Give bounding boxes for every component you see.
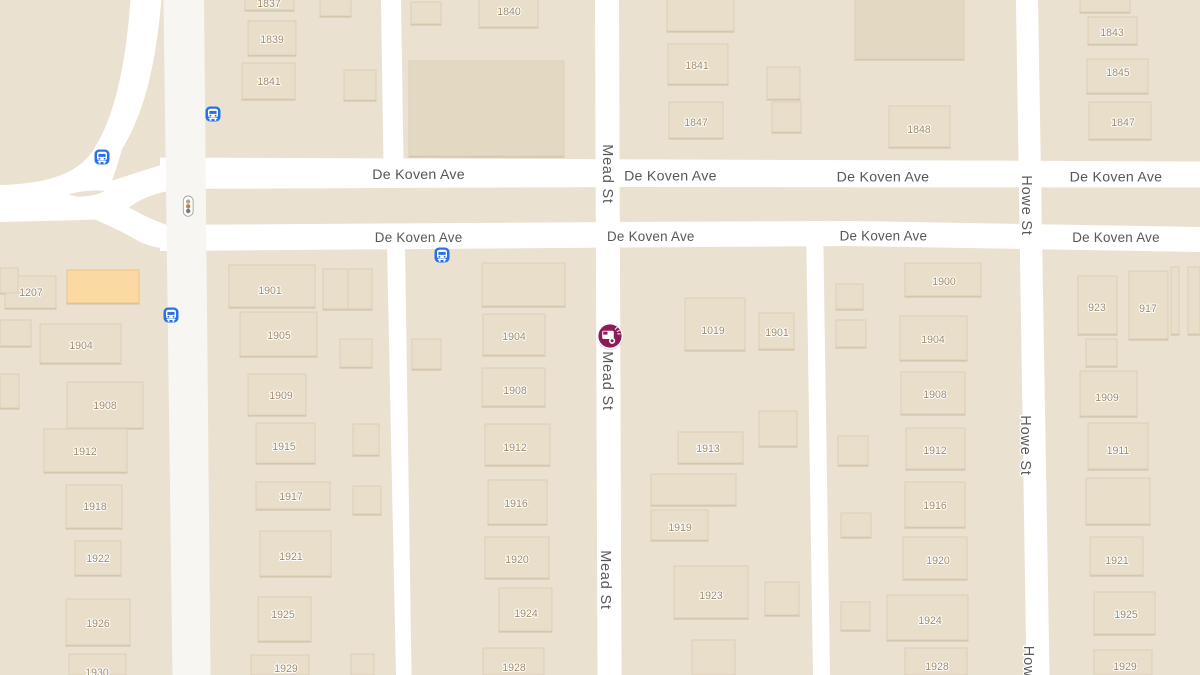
- svg-text:Howe St: Howe St: [1018, 175, 1034, 235]
- svg-text:1837: 1837: [257, 0, 281, 10]
- svg-text:1904: 1904: [69, 340, 93, 352]
- svg-text:De Koven Ave: De Koven Ave: [837, 170, 930, 186]
- svg-text:1905: 1905: [267, 330, 291, 342]
- svg-text:Howe St: Howe St: [1017, 415, 1033, 475]
- svg-text:1909: 1909: [269, 390, 293, 402]
- svg-text:1847: 1847: [1111, 117, 1135, 129]
- svg-text:De Koven Ave: De Koven Ave: [375, 230, 463, 245]
- svg-text:1019: 1019: [701, 325, 725, 337]
- svg-text:1916: 1916: [504, 498, 528, 510]
- svg-text:1908: 1908: [93, 400, 117, 412]
- svg-text:1912: 1912: [923, 445, 947, 457]
- svg-text:Howe St: Howe St: [1020, 646, 1036, 675]
- svg-text:1919: 1919: [668, 522, 692, 534]
- svg-text:1901: 1901: [765, 327, 789, 339]
- svg-text:1847: 1847: [684, 117, 708, 129]
- svg-text:1841: 1841: [257, 76, 281, 88]
- svg-text:1916: 1916: [923, 500, 947, 512]
- svg-text:1928: 1928: [502, 662, 526, 674]
- svg-text:1913: 1913: [696, 443, 720, 455]
- svg-text:1843: 1843: [1100, 27, 1124, 39]
- svg-text:1924: 1924: [918, 615, 942, 627]
- svg-text:1921: 1921: [1105, 555, 1129, 567]
- svg-text:1909: 1909: [1095, 392, 1119, 404]
- svg-text:1917: 1917: [279, 491, 303, 503]
- svg-text:1918: 1918: [83, 501, 107, 513]
- svg-text:Mead St: Mead St: [599, 144, 615, 204]
- svg-text:De Koven Ave: De Koven Ave: [607, 229, 695, 244]
- svg-text:1207: 1207: [19, 287, 43, 299]
- svg-text:1904: 1904: [921, 334, 945, 346]
- svg-text:1912: 1912: [73, 446, 97, 458]
- svg-text:1925: 1925: [1114, 609, 1138, 621]
- svg-text:1925: 1925: [271, 609, 295, 621]
- svg-text:917: 917: [1139, 303, 1157, 315]
- svg-text:1908: 1908: [923, 389, 947, 401]
- svg-text:1912: 1912: [503, 442, 527, 454]
- svg-text:1841: 1841: [685, 60, 709, 72]
- svg-text:De Koven Ave: De Koven Ave: [840, 228, 928, 243]
- svg-text:1908: 1908: [503, 385, 527, 397]
- svg-text:1929: 1929: [274, 663, 298, 675]
- svg-text:1926: 1926: [86, 618, 110, 630]
- svg-text:1904: 1904: [502, 331, 526, 343]
- svg-text:1930: 1930: [85, 667, 109, 675]
- svg-text:1921: 1921: [279, 551, 303, 563]
- svg-text:1915: 1915: [272, 441, 296, 453]
- svg-text:Mead St: Mead St: [599, 351, 615, 411]
- svg-text:1920: 1920: [926, 555, 950, 567]
- svg-text:1920: 1920: [505, 554, 529, 566]
- svg-text:1845: 1845: [1106, 67, 1130, 79]
- svg-text:1911: 1911: [1107, 445, 1130, 457]
- svg-text:923: 923: [1088, 302, 1106, 314]
- svg-text:1839: 1839: [260, 34, 284, 46]
- svg-text:1922: 1922: [86, 553, 110, 565]
- svg-text:1929: 1929: [1113, 661, 1137, 673]
- svg-text:De Koven Ave: De Koven Ave: [1070, 170, 1163, 186]
- svg-text:De Koven Ave: De Koven Ave: [1072, 230, 1160, 245]
- svg-text:De Koven Ave: De Koven Ave: [624, 168, 717, 184]
- svg-text:1840: 1840: [497, 6, 521, 18]
- svg-text:De Koven Ave: De Koven Ave: [372, 167, 465, 183]
- svg-text:1924: 1924: [514, 608, 538, 620]
- svg-text:1901: 1901: [258, 285, 282, 297]
- svg-text:Mead St: Mead St: [597, 550, 613, 610]
- svg-text:1900: 1900: [932, 276, 956, 288]
- svg-text:1848: 1848: [907, 124, 931, 136]
- svg-text:1923: 1923: [699, 590, 723, 602]
- svg-text:1928: 1928: [925, 661, 949, 673]
